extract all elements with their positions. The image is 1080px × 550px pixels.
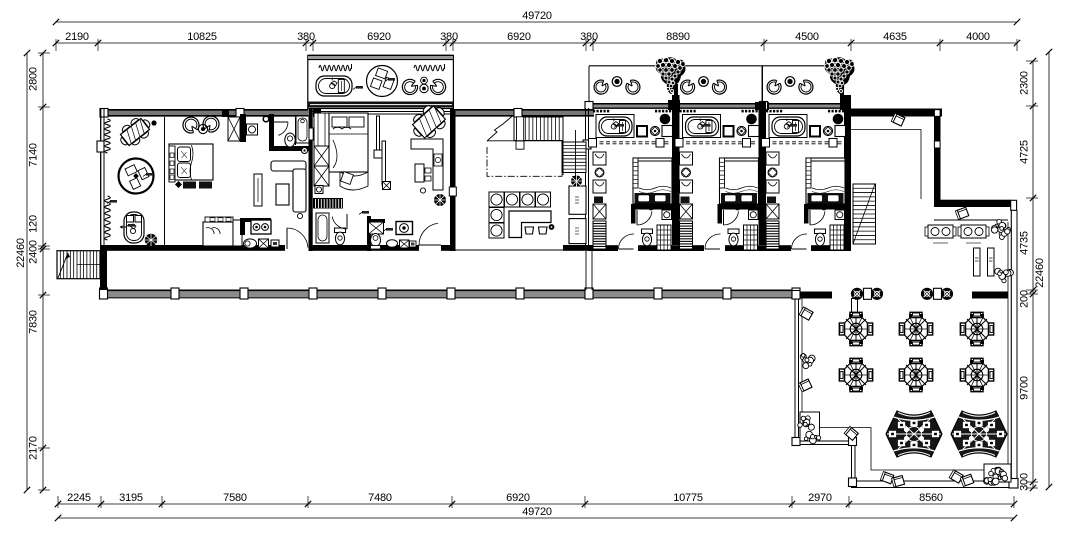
svg-text:22460: 22460 [1034, 258, 1046, 288]
svg-text:380: 380 [440, 31, 458, 43]
svg-text:9700: 9700 [1019, 376, 1031, 400]
svg-text:49720: 49720 [522, 10, 552, 22]
svg-text:7830: 7830 [28, 310, 40, 334]
svg-text:300: 300 [1019, 473, 1031, 491]
svg-text:200: 200 [1019, 290, 1031, 308]
svg-text:49720: 49720 [522, 506, 552, 518]
svg-text:4725: 4725 [1019, 140, 1031, 164]
svg-text:10825: 10825 [187, 31, 217, 43]
svg-text:380: 380 [297, 31, 315, 43]
svg-text:2190: 2190 [65, 31, 89, 43]
svg-text:6920: 6920 [367, 31, 391, 43]
svg-text:8890: 8890 [666, 31, 690, 43]
svg-text:2970: 2970 [808, 492, 832, 504]
svg-text:3195: 3195 [119, 492, 143, 504]
svg-text:6920: 6920 [507, 31, 531, 43]
svg-text:2400: 2400 [28, 240, 40, 264]
svg-text:4000: 4000 [966, 31, 990, 43]
svg-text:4500: 4500 [795, 31, 819, 43]
svg-text:10775: 10775 [673, 492, 703, 504]
svg-text:22460: 22460 [15, 238, 27, 268]
svg-text:2170: 2170 [28, 436, 40, 460]
svg-text:8560: 8560 [919, 492, 943, 504]
svg-text:7140: 7140 [28, 143, 40, 167]
svg-text:4735: 4735 [1019, 231, 1031, 255]
svg-text:120: 120 [28, 215, 40, 233]
svg-text:2245: 2245 [67, 492, 91, 504]
svg-text:2300: 2300 [1019, 71, 1031, 95]
svg-text:7480: 7480 [368, 492, 392, 504]
svg-text:380: 380 [580, 31, 598, 43]
svg-text:6920: 6920 [506, 492, 530, 504]
svg-text:4635: 4635 [883, 31, 907, 43]
svg-text:7580: 7580 [223, 492, 247, 504]
svg-text:2800: 2800 [28, 67, 40, 91]
